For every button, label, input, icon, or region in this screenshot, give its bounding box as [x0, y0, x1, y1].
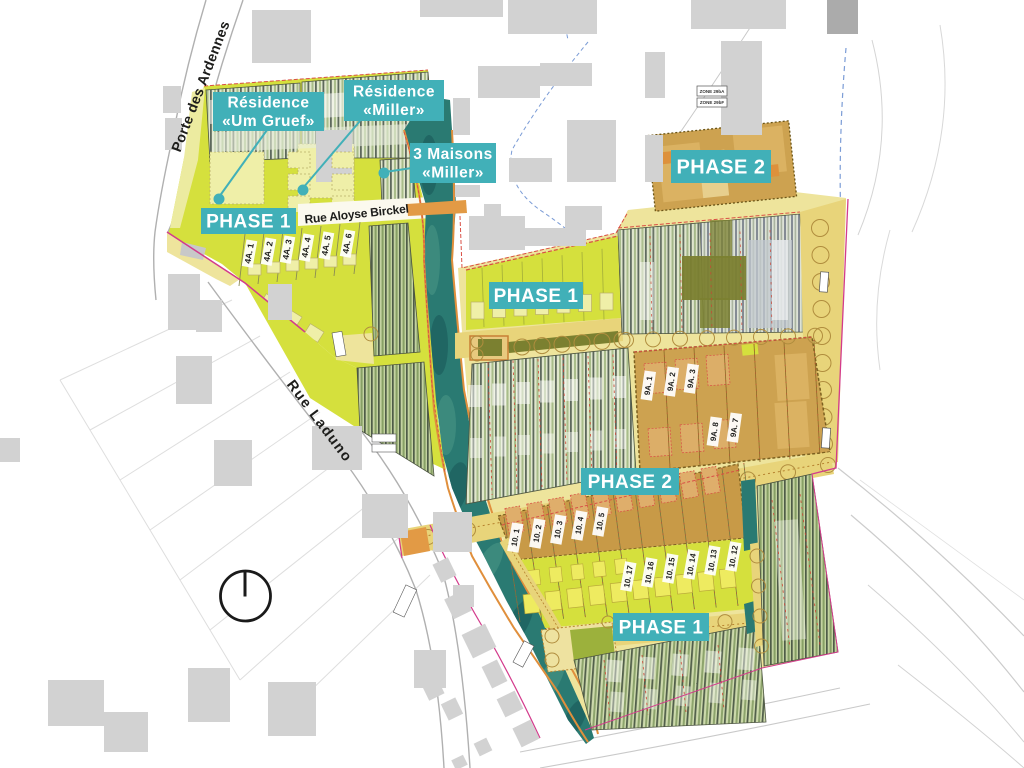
svg-text:«Miller»: «Miller»	[363, 102, 425, 119]
svg-text:«Um Gruef»: «Um Gruef»	[222, 113, 315, 130]
svg-text:PHASE 2: PHASE 2	[676, 157, 765, 179]
svg-text:PHASE 1: PHASE 1	[494, 286, 579, 307]
svg-text:«Miller»: «Miller»	[422, 165, 484, 182]
svg-text:3 Maisons: 3 Maisons	[413, 146, 492, 163]
svg-text:ZONE 29bA: ZONE 29bA	[700, 89, 726, 94]
svg-text:Résidence: Résidence	[353, 84, 435, 101]
svg-text:PHASE 1: PHASE 1	[206, 212, 291, 233]
svg-text:PHASE 1: PHASE 1	[619, 618, 704, 639]
svg-text:ZONE 29bF: ZONE 29bF	[700, 100, 725, 105]
svg-text:Résidence: Résidence	[227, 95, 309, 112]
svg-text:PHASE 2: PHASE 2	[588, 472, 673, 493]
